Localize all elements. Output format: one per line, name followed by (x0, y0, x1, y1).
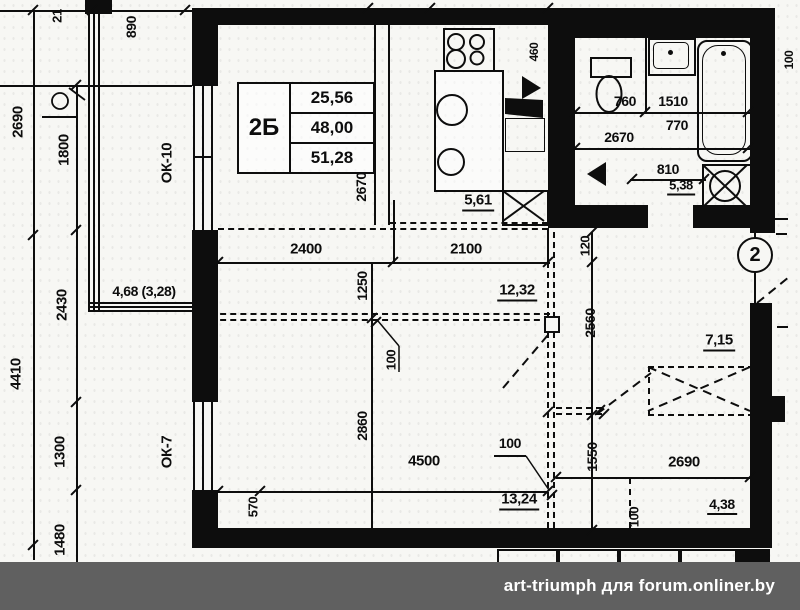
dimension-label: 2690 (11, 106, 26, 138)
dimension-label: 1800 (57, 134, 72, 166)
dimension-label: 460 (528, 43, 540, 62)
dimension-label: 1300 (53, 436, 68, 468)
sink-bowl-icon (437, 95, 467, 125)
partition-post-icon (544, 316, 560, 333)
dimension-label: 1510 (658, 94, 688, 108)
door-swing-icon (597, 373, 651, 414)
full-area-value: 51,28 (291, 144, 373, 172)
stove-burner-icon (447, 50, 465, 68)
door-swing-icon (757, 277, 789, 303)
dimension-label: 2860 (355, 411, 369, 441)
stove-burner-icon (470, 35, 484, 49)
dimension-label: 1480 (53, 524, 68, 556)
axis-number: 2 (749, 244, 760, 267)
dimension-label: 120 (579, 236, 592, 257)
stove-burner-icon (448, 34, 464, 50)
window-label: ОК-10 (160, 143, 175, 184)
survey-mark-icon (52, 93, 68, 109)
watermark-text: art-triumph для forum.onliner.by (504, 576, 775, 596)
apartment-type: 2Б (239, 84, 291, 172)
survey-mark-icon (69, 88, 85, 100)
floorplan-scan: 2Б 25,56 48,00 51,28 2 21 890 2690 1800 … (0, 0, 800, 610)
area-label: 5,61 (462, 193, 494, 212)
fixtures-layer (0, 0, 800, 610)
sink-bowl-icon (438, 149, 464, 175)
door-triangle-icon (522, 76, 541, 99)
dimension-label: 4410 (9, 358, 24, 390)
door-triangle-icon (587, 162, 606, 186)
dimension-label: 2670 (354, 172, 368, 202)
dimension-label: 2670 (604, 130, 634, 144)
dimension-label: 2560 (583, 308, 597, 338)
dimension-label: 100 (385, 350, 398, 371)
dimension-label: 2690 (668, 455, 700, 470)
area-label: 7,15 (703, 333, 735, 352)
area-label: 13,24 (499, 492, 539, 511)
leader-line (378, 321, 399, 346)
dimension-label: 4500 (408, 454, 440, 469)
dimension-label: 770 (666, 118, 688, 132)
leader-line (526, 456, 549, 490)
stove-burner-icon (471, 52, 484, 65)
balcony-area-label: 4,68 (3,28) (112, 284, 175, 298)
total-area-value: 48,00 (291, 114, 373, 144)
dimension-label: 570 (247, 497, 260, 518)
dimension-label: 21 (51, 9, 64, 23)
dimension-label: 2430 (55, 289, 70, 321)
axis-marker-2: 2 (737, 237, 773, 273)
dimension-label: 1550 (585, 442, 599, 472)
dimension-label: 2100 (450, 242, 482, 257)
area-label: 5,38 (667, 179, 695, 196)
duct-block-icon (505, 98, 543, 118)
dimension-label: 100 (783, 51, 795, 70)
door-swing-icon (503, 329, 553, 388)
apartment-type-table: 2Б 25,56 48,00 51,28 (237, 82, 375, 174)
area-label: 4,38 (707, 497, 737, 515)
dimension-label: 1250 (355, 271, 369, 301)
window-label: ОК-7 (160, 436, 175, 469)
area-label: 12,32 (497, 283, 537, 302)
dimension-label: 100 (628, 507, 641, 528)
dimension-label: 2400 (290, 242, 322, 257)
dimension-label: 890 (124, 16, 138, 38)
dimension-label: 810 (657, 162, 679, 176)
watermark-band: art-triumph для forum.onliner.by (0, 562, 800, 610)
dimension-label: 760 (614, 94, 636, 108)
dimension-label: 100 (499, 436, 521, 450)
living-area-value: 25,56 (291, 84, 373, 114)
